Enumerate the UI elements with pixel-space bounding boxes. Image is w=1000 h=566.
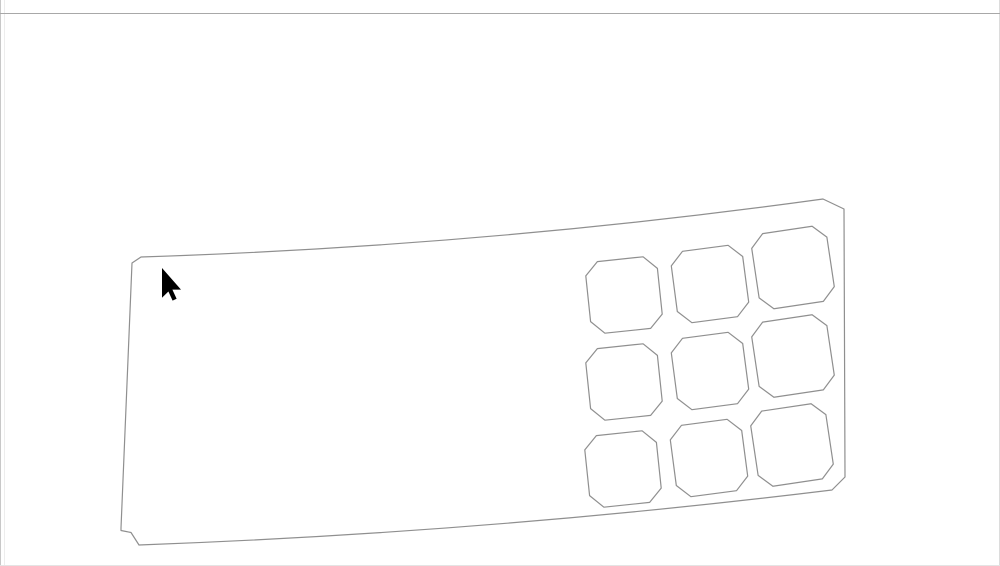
grid-cell[interactable]: [583, 429, 662, 508]
plate-outline-shape[interactable]: [121, 199, 845, 545]
drawing-layer: [0, 0, 1000, 566]
grid-cell[interactable]: [584, 342, 663, 421]
drawing-canvas[interactable]: [0, 0, 1000, 566]
outline-group: [121, 199, 845, 545]
grid-cell[interactable]: [669, 418, 750, 499]
grid-cell[interactable]: [750, 313, 836, 399]
grid-cell[interactable]: [670, 244, 751, 325]
grid-cells-group: [583, 224, 836, 508]
grid-cell[interactable]: [749, 402, 835, 488]
grid-cell[interactable]: [750, 224, 836, 310]
mouse-cursor-icon: [162, 268, 181, 301]
grid-cell[interactable]: [584, 255, 663, 334]
grid-cell[interactable]: [670, 331, 751, 412]
